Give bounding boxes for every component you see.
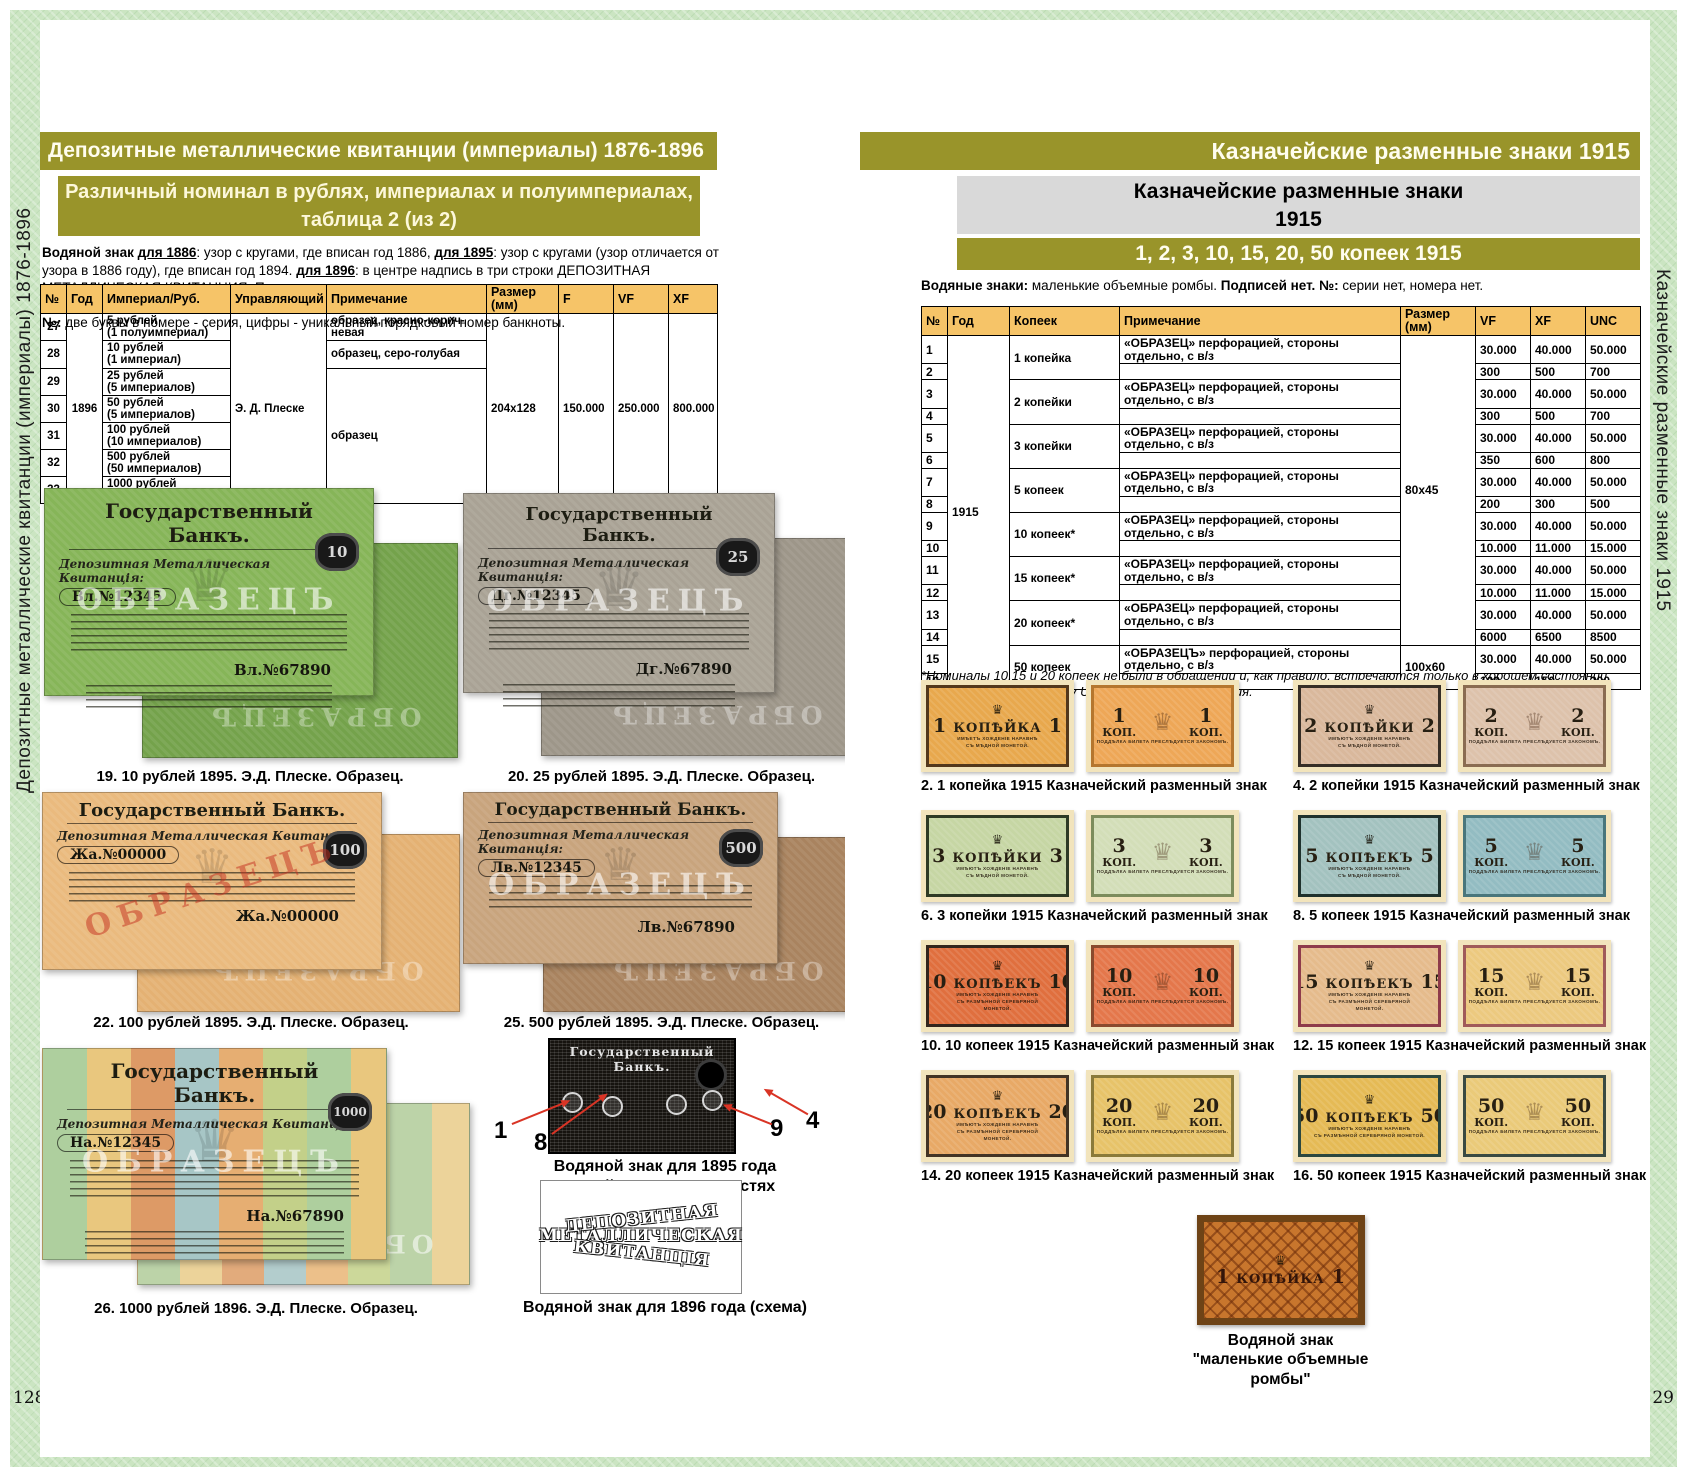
table-row: 1 1915 1 копейка «ОБРАЗЕЦ» перфорацией, …: [922, 336, 1641, 364]
watermark-1896-caption: Водяной знак для 1896 года (схема): [470, 1298, 860, 1318]
banknote-back: 3 КОП. ♛ 3 КОП. ПОДДѢЛКА БИЛЕТА: [1086, 810, 1239, 902]
banknote-figure: ♛ 5 КОПѢЕКЪ 5 ИМѢЮТЪ ХОЖДЕНІЕ НАРАВНѢ СЪ…: [1293, 810, 1613, 924]
callout-label-9: 9: [770, 1115, 783, 1143]
kop-abbrev: КОП.: [1102, 856, 1136, 869]
figure-caption: 19. 10 рублей 1895. Э.Д. Плеске. Образец…: [40, 768, 460, 785]
front-fine-print: МОНЕТОЙ.: [984, 1136, 1012, 1143]
banknote-front: ♛ Государственный Банкъ. Депозитная Мета…: [42, 1048, 387, 1260]
denomination-value: 20: [1049, 1103, 1069, 1122]
kop-abbrev: КОП.: [1474, 726, 1508, 739]
figure-caption: 8. 5 копеек 1915 Казначейский разменный …: [1293, 908, 1613, 924]
denomination-value: 15: [1298, 973, 1318, 992]
figure-caption: 26. 1000 рублей 1896. Э.Д. Плеске. Образ…: [42, 1300, 470, 1317]
front-fine-print: СЪ МѢДНОЙ МОНЕТОЙ.: [966, 873, 1029, 880]
denomination-word: КОПѢЕКЪ: [1325, 1112, 1413, 1125]
col-xf: XF: [1531, 307, 1586, 336]
back-fine-print: ПОДДѢЛКА БИЛЕТА ПРЕСЛѢДУЕТСЯ ЗАКОНОМЪ.: [1097, 869, 1229, 876]
col-no: №: [922, 307, 948, 336]
schema-box: ДЕПОЗИТНАЯ МЕТАЛЛИЧЕСКАЯ КВИТАНЦІЯ: [540, 1180, 742, 1294]
bank-title: Государственный Банкъ.: [67, 1059, 362, 1110]
serial-number-2: Лв.№67890: [478, 918, 735, 936]
denomination-value: 1: [1332, 1268, 1345, 1287]
front-fine-print: СЪ МѢДНОЙ МОНЕТОЙ.: [1338, 743, 1401, 750]
kop-abbrev: КОП.: [1474, 856, 1508, 869]
table-row: 5 3 копейки «ОБРАЗЕЦ» перфорацией, сторо…: [922, 424, 1641, 452]
denomination-value: 10: [1193, 967, 1219, 986]
banknote-front: ♛ Государственный Банкъ. Депозитная Мета…: [463, 792, 778, 964]
denomination-value: 1: [933, 717, 946, 736]
imperial-eagle-icon: ♛: [1524, 971, 1546, 995]
watermark-photo: ♛ 1 КОПѢЙКА 1: [1197, 1215, 1365, 1325]
figure-caption: 25. 500 рублей 1895. Э.Д. Плеске. Образе…: [463, 1014, 860, 1031]
imperial-eagle-icon: ♛: [1275, 1254, 1287, 1267]
sample-overlay: ОБРАЗЕЦЪ: [82, 1145, 347, 1180]
denomination-value: 5: [1305, 847, 1318, 866]
kop-abbrev: КОП.: [1189, 856, 1223, 869]
kop-abbrev: КОП.: [1561, 1116, 1595, 1129]
imperial-eagle-icon: ♛: [1152, 971, 1174, 995]
subtitle-line1: Различный номинал в рублях, империалах и…: [65, 181, 693, 203]
banknote-back: 5 КОП. ♛ 5 КОП. ПОДДѢЛКА БИЛЕТА: [1458, 810, 1611, 902]
denomination-value: 3: [932, 847, 945, 866]
front-fine-print: СЪ МѢДНОЙ МОНЕТОЙ.: [966, 743, 1029, 750]
right-catalog-table: № Год Копеек Примечание Размер (мм) VF X…: [921, 306, 1641, 690]
green-border-frame: Депозитные металлические квитанции (импе…: [10, 10, 1677, 1467]
watermark-caption: Водяной знак "маленькие объемные ромбы": [921, 1331, 1640, 1389]
col-no: №: [41, 285, 67, 314]
banknote-front: ♛ 20 КОПѢЕКЪ 20 ИМѢЮТЪ ХОЖДЕНІЕ НАРАВНѢ …: [921, 1070, 1074, 1162]
imperial-eagle-icon: ♛: [1364, 1093, 1376, 1106]
col-size: Размер (мм): [487, 285, 559, 314]
imperial-eagle-icon: ♛: [1524, 841, 1546, 865]
right-page-denoms-bar: 1, 2, 3, 10, 15, 20, 50 копеек 1915: [957, 238, 1640, 270]
bank-title: Государственный Банкъ.: [69, 499, 349, 550]
banknote-figure: ♛ 10 КОПѢЕКЪ 10 ИМѢЮТЪ ХОЖДЕНІЕ НАРАВНѢ …: [921, 940, 1241, 1054]
serial-number-2: Дг.№67890: [478, 660, 732, 678]
col-size: Размер (мм): [1401, 307, 1476, 336]
imperial-eagle-icon: ♛: [1152, 1101, 1174, 1125]
denomination-word: КОПѢЕКЪ: [1325, 978, 1413, 991]
table-row: 27 1896 5 рублей (1 полуимпериал) Э. Д. …: [41, 314, 718, 341]
denomination-word: КОПѢЙКИ: [1324, 722, 1414, 735]
figure-caption: 6. 3 копейки 1915 Казначейский разменный…: [921, 908, 1241, 924]
front-fine-print: ИМѢЮТЪ ХОЖДЕНІЕ НАРАВНѢ: [956, 992, 1038, 999]
figure-caption: 20. 25 рублей 1895. Э.Д. Плеске. Образец…: [463, 768, 860, 785]
denomination-value: 3: [1113, 837, 1126, 856]
serial-number-2: На.№67890: [57, 1207, 344, 1225]
front-fine-print: ИМѢЮТЪ ХОЖДЕНІЕ НАРАВНѢ: [1328, 992, 1410, 999]
imperial-eagle-icon: ♛: [992, 703, 1004, 716]
callout-label-4: 4: [806, 1107, 819, 1135]
figure-caption: 12. 15 копеек 1915 Казначейский разменны…: [1293, 1038, 1613, 1054]
table-row: 13 20 копеек* «ОБРАЗЕЦ» перфорацией, сто…: [922, 601, 1641, 629]
back-fine-print: ПОДДѢЛКА БИЛЕТА ПРЕСЛѢДУЕТСЯ ЗАКОНОМЪ.: [1469, 739, 1601, 746]
denomination-value: 3: [1199, 837, 1212, 856]
table-row: 11 15 копеек* «ОБРАЗЕЦ» перфорацией, сто…: [922, 557, 1641, 585]
back-fine-print: ПОДДѢЛКА БИЛЕТА ПРЕСЛѢДУЕТСЯ ЗАКОНОМЪ.: [1097, 1129, 1229, 1136]
banknote-figure: ♛ 20 КОПѢЕКЪ 20 ИМѢЮТЪ ХОЖДЕНІЕ НАРАВНѢ …: [921, 1070, 1241, 1184]
imperial-eagle-icon: ♛: [1152, 841, 1174, 865]
banknote-back: 2 КОП. ♛ 2 КОП. ПОДДѢЛКА БИЛЕТА: [1458, 680, 1611, 772]
denomination-badge: 25: [716, 538, 760, 576]
denomination-value: 50: [1478, 1097, 1504, 1116]
denomination-value: 1: [1113, 707, 1126, 726]
kop-abbrev: КОП.: [1102, 726, 1136, 739]
denomination-word: КОПѢЙКА: [953, 722, 1042, 735]
figure-500-rubles-1895: ОБРАЗЕЦЪ ♛ Государственный Банкъ. Депози…: [463, 792, 860, 1037]
kop-abbrev: КОП.: [1189, 726, 1223, 739]
front-fine-print: ИМѢЮТЪ ХОЖДЕНІЕ НАРАВНѢ: [956, 1122, 1038, 1129]
imperial-eagle-icon: ♛: [1364, 959, 1376, 972]
table-row: 9 10 копеек* «ОБРАЗЕЦ» перфорацией, стор…: [922, 513, 1641, 541]
figure-1000-rubles-1896: ОБРАЗЕЦЪ ♛ Государственный Банкъ. Депози…: [42, 1048, 470, 1320]
imperial-eagle-icon: ♛: [992, 1089, 1004, 1102]
banknote-front: ♛ 1 КОПѢЙКА 1 ИМѢЕТЪ ХОЖДЕНІЕ НАРАВНѢ СЪ…: [921, 680, 1074, 772]
banknote-front: ♛ Государственный Банкъ. Депозитная Мета…: [42, 792, 382, 970]
figure-10-rubles-1895: ОБРАЗЕЦЪ ♛ Государственный Банкъ. Депози…: [40, 488, 460, 788]
banknote-figure: ♛ 1 КОПѢЙКА 1 ИМѢЕТЪ ХОЖДЕНІЕ НАРАВНѢ СЪ…: [921, 680, 1241, 794]
col-note: Примечание: [327, 285, 487, 314]
denomination-value: 20: [1193, 1097, 1219, 1116]
table-row: 7 5 копеек «ОБРАЗЕЦ» перфорацией, сторон…: [922, 468, 1641, 496]
denomination-value: 15: [1421, 973, 1441, 992]
bank-title: Государственный Банкъ.: [488, 800, 753, 823]
col-xf: XF: [669, 285, 718, 314]
col-year: Год: [948, 307, 1010, 336]
front-fine-print: СЪ РАЗМѢННОЙ СЕРЕБРЯНОЙ: [957, 1129, 1038, 1136]
denomination-value: 50: [1421, 1107, 1441, 1126]
front-fine-print: МОНЕТОЙ.: [984, 1006, 1012, 1013]
table-header-row: № Год Империал/Руб. Управляющий Примечан…: [41, 285, 718, 314]
figure-caption: 10. 10 копеек 1915 Казначейский разменны…: [921, 1038, 1241, 1054]
serial-number: Жа.№00000: [57, 846, 179, 864]
figure-caption: 22. 100 рублей 1895. Э.Д. Плеске. Образе…: [42, 1014, 460, 1031]
denomination-value: 2: [1485, 707, 1498, 726]
col-vf: VF: [614, 285, 669, 314]
denomination-value: 3: [1050, 847, 1063, 866]
figure-caption: 2. 1 копейка 1915 Казначейский разменный…: [921, 778, 1241, 794]
imperial-eagle-icon: ♛: [992, 833, 1004, 846]
front-fine-print: ИМѢЮТЪ ХОЖДЕНІЕ НАРАВНѢ: [1328, 736, 1410, 743]
imperial-eagle-icon: ♛: [992, 959, 1004, 972]
col-note: Примечание: [1120, 307, 1401, 336]
figure-caption: 4. 2 копейки 1915 Казначейский разменный…: [1293, 778, 1613, 794]
right-intro-line: Водяные знаки: маленькие объемные ромбы.…: [921, 278, 1640, 293]
table-row: 3 2 копейки «ОБРАЗЕЦ» перфорацией, сторо…: [922, 380, 1641, 408]
col-vf: VF: [1476, 307, 1531, 336]
denomination-value: 20: [926, 1103, 946, 1122]
front-fine-print: МОНЕТОЙ.: [1356, 1006, 1384, 1013]
denomination-word: КОПѢЕКЪ: [953, 1108, 1041, 1121]
col-f: F: [559, 285, 614, 314]
bank-title: Государственный Банкъ.: [488, 504, 750, 549]
kop-abbrev: КОП.: [1561, 726, 1595, 739]
back-fine-print: ПОДДѢЛКА БИЛЕТА ПРЕСЛѢДУЕТСЯ ЗАКОНОМЪ.: [1469, 1129, 1601, 1136]
denomination-value: 10: [1049, 973, 1069, 992]
figure-caption: 14. 20 копеек 1915 Казначейский разменны…: [921, 1168, 1241, 1184]
fine-print-lines: [85, 1231, 343, 1255]
kop-abbrev: КОП.: [1189, 1116, 1223, 1129]
front-fine-print: ИМѢЮТЪ ХОЖДЕНІЕ НАРАВНѢ: [956, 866, 1038, 873]
denomination-value: 5: [1571, 837, 1584, 856]
date-circle: [702, 1090, 723, 1111]
kop-abbrev: КОП.: [1474, 1116, 1508, 1129]
denomination-word: КОПѢЙКА: [1236, 1273, 1325, 1286]
banknote-back: 1 КОП. ♛ 1 КОП. ПОДДѢЛКА БИЛЕТА: [1086, 680, 1239, 772]
back-fine-print: ПОДДѢЛКА БИЛЕТА ПРЕСЛѢДУЕТСЯ ЗАКОНОМЪ.: [1097, 999, 1229, 1006]
figure-100-rubles-1895: ОБРАЗЕЦЪ ♛ Государственный Банкъ. Депози…: [42, 792, 460, 1037]
back-fine-print: ПОДДѢЛКА БИЛЕТА ПРЕСЛѢДУЕТСЯ ЗАКОНОМЪ.: [1469, 869, 1601, 876]
denomination-value: 2: [1571, 707, 1584, 726]
back-fine-print: ПОДДѢЛКА БИЛЕТА ПРЕСЛѢДУЕТСЯ ЗАКОНОМЪ.: [1469, 999, 1601, 1006]
col-unc: UNC: [1586, 307, 1641, 336]
sample-overlay: ОБРАЗЕЦЪ: [488, 867, 753, 902]
sample-overlay: ОБРАЗЕЦЪ: [487, 583, 752, 618]
kop-abbrev: КОП.: [1102, 1116, 1136, 1129]
imperial-eagle-icon: ♛: [1524, 711, 1546, 735]
left-page-subtitle: Различный номинал в рублях, империалах и…: [58, 176, 700, 236]
fine-print-lines: [86, 685, 332, 709]
denomination-value: 15: [1478, 967, 1504, 986]
seal-blob: [698, 1062, 724, 1088]
figure-25-rubles-1895: ОБРАЗЕЦЪ ♛ Государственный Банкъ. Депози…: [463, 488, 860, 788]
banknote-front: ♛ 10 КОПѢЕКЪ 10 ИМѢЮТЪ ХОЖДЕНІЕ НАРАВНѢ …: [921, 940, 1074, 1032]
kop-abbrev: КОП.: [1189, 986, 1223, 999]
imperial-eagle-icon: ♛: [1524, 1101, 1546, 1125]
banknote-figure: ♛ 50 КОПѢЕКЪ 50 ИМѢЮТЪ ХОЖДЕНІЕ НАРАВНѢ …: [1293, 1070, 1613, 1184]
subtitle-line2: таблица 2 (из 2): [301, 209, 457, 231]
back-fine-print: ПОДДѢЛКА БИЛЕТА ПРЕСЛѢДУЕТСЯ ЗАКОНОМЪ.: [1097, 739, 1229, 746]
banknote-front: ♛ Государственный Банкъ. Депозитная Мета…: [463, 493, 775, 693]
imperial-eagle-icon: ♛: [1152, 711, 1174, 735]
front-fine-print: СЪ РАЗМѢННОЙ СЕРЕБРЯНОЙ: [1329, 999, 1410, 1006]
banknote-front: ♛ 3 КОПѢЙКИ 3 ИМѢЮТЪ ХОЖДЕНІЕ НАРАВНѢ СЪ…: [921, 810, 1074, 902]
denomination-value: 50: [1298, 1107, 1318, 1126]
denomination-value: 10: [1106, 967, 1132, 986]
banknote-front: ♛ 2 КОПѢЙКИ 2 ИМѢЮТЪ ХОЖДЕНІЕ НАРАВНѢ СЪ…: [1293, 680, 1446, 772]
banknote-front: ♛ Государственный Банкъ. Депозитная Мета…: [44, 488, 374, 696]
front-fine-print: СЪ МѢДНОЙ МОНЕТОЙ.: [1338, 873, 1401, 880]
denomination-word: КОПѢЙКИ: [952, 852, 1042, 865]
denomination-value: 15: [1565, 967, 1591, 986]
arrow-icon: [769, 1091, 808, 1115]
front-fine-print: ИМѢЮТЪ ХОЖДЕНІЕ НАРАВНѢ: [1328, 1126, 1410, 1133]
denomination-value: 1: [1199, 707, 1212, 726]
date-circle: [666, 1094, 687, 1115]
banknote-back: 10 КОП. ♛ 10 КОП. ПОДДѢЛКА БИЛЕТ: [1086, 940, 1239, 1032]
callout-label-1: 1: [494, 1117, 507, 1145]
bank-title: Государственный Банкъ.: [67, 800, 357, 824]
fine-print-lines: [503, 684, 734, 708]
sample-overlay: ОБРАЗЕЦЪ: [77, 583, 342, 618]
banknote-front: ♛ 50 КОПѢЕКЪ 50 ИМѢЮТЪ ХОЖДЕНІЕ НАРАВНѢ …: [1293, 1070, 1446, 1162]
front-fine-print: СЪ РАЗМѢННОЙ СЕРЕБРЯНОЙ МОНЕТОЙ.: [1314, 1133, 1425, 1140]
serial-number-2: Вл.№67890: [59, 661, 331, 679]
callout-label-8: 8: [534, 1129, 547, 1157]
left-catalog-table: № Год Империал/Руб. Управляющий Примечан…: [40, 284, 718, 504]
denomination-word: КОПѢЕКЪ: [1325, 852, 1413, 865]
denomination-value: 2: [1304, 717, 1317, 736]
denomination-value: 50: [1565, 1097, 1591, 1116]
kop-abbrev: КОП.: [1102, 986, 1136, 999]
kopeck-banknotes-grid: ♛ 1 КОПѢЙКА 1 ИМѢЕТЪ ХОЖДЕНІЕ НАРАВНѢ СЪ…: [921, 680, 1661, 1184]
figure-caption: 16. 50 копеек 1915 Казначейский разменны…: [1293, 1168, 1613, 1184]
denomination-value: 5: [1421, 847, 1434, 866]
right-page-graybox: Казначейские разменные знаки 1915: [957, 176, 1640, 234]
page-right: Казначейские разменные знаки 1915 Казнач…: [845, 20, 1650, 1457]
left-page-title: Депозитные металлические квитанции (импе…: [40, 132, 717, 170]
kop-abbrev: КОП.: [1561, 986, 1595, 999]
denomination-value: 1: [1216, 1268, 1229, 1287]
denomination-value: 10: [926, 973, 946, 992]
front-fine-print: ИМѢЮТЪ ХОЖДЕНІЕ НАРАВНѢ: [1328, 866, 1410, 873]
col-denom: Империал/Руб.: [103, 285, 231, 314]
denomination-badge: 500: [719, 829, 763, 867]
table-header-row: № Год Копеек Примечание Размер (мм) VF X…: [922, 307, 1641, 336]
imperial-eagle-icon: ♛: [1364, 833, 1376, 846]
banknote-figure: ♛ 2 КОПѢЙКИ 2 ИМѢЮТЪ ХОЖДЕНІЕ НАРАВНѢ СЪ…: [1293, 680, 1613, 794]
banknote-back: 15 КОП. ♛ 15 КОП. ПОДДѢЛКА БИЛЕТ: [1458, 940, 1611, 1032]
denomination-badge: 1000: [328, 1093, 372, 1131]
kop-abbrev: КОП.: [1474, 986, 1508, 999]
sidebar-title-left: Депозитные металлические квитанции (импе…: [10, 180, 40, 820]
figure-watermark-diamonds: ♛ 1 КОПѢЙКА 1 Водяной знак "маленькие об…: [921, 1215, 1640, 1389]
col-year: Год: [67, 285, 103, 314]
kop-abbrev: КОП.: [1561, 856, 1595, 869]
watermark-photo: Государственный Банкъ.: [548, 1038, 736, 1154]
banknote-figure: ♛ 3 КОПѢЙКИ 3 ИМѢЮТЪ ХОЖДЕНІЕ НАРАВНѢ СЪ…: [921, 810, 1241, 924]
col-manager: Управляющий: [231, 285, 327, 314]
denomination-value: 5: [1485, 837, 1498, 856]
page-left: Депозитные металлические квитанции (импе…: [40, 20, 845, 1457]
imperial-eagle-icon: ♛: [1364, 703, 1376, 716]
figure-watermark-1896-schema: ДЕПОЗИТНАЯ МЕТАЛЛИЧЕСКАЯ КВИТАНЦІЯ Водян…: [470, 1180, 860, 1325]
denomination-value: 1: [1049, 717, 1062, 736]
right-page-title: Казначейские разменные знаки 1915: [860, 132, 1640, 170]
sidebar-title-right: Казначейские разменные знаки 1915: [1647, 160, 1677, 720]
banknote-back: 20 КОП. ♛ 20 КОП. ПОДДѢЛКА БИЛЕТ: [1086, 1070, 1239, 1162]
front-fine-print: СЪ РАЗМѢННОЙ СЕРЕБРЯНОЙ: [957, 999, 1038, 1006]
denomination-value: 20: [1106, 1097, 1132, 1116]
banknote-figure: ♛ 15 КОПѢЕКЪ 15 ИМѢЮТЪ ХОЖДЕНІЕ НАРАВНѢ …: [1293, 940, 1613, 1054]
banknote-back: 50 КОП. ♛ 50 КОП. ПОДДѢЛКА БИЛЕТ: [1458, 1070, 1611, 1162]
banknote-front: ♛ 5 КОПѢЕКЪ 5 ИМѢЮТЪ ХОЖДЕНІЕ НАРАВНѢ СЪ…: [1293, 810, 1446, 902]
fine-print-lines: [71, 614, 347, 656]
banknote-front: ♛ 15 КОПѢЕКЪ 15 ИМѢЮТЪ ХОЖДЕНІЕ НАРАВНѢ …: [1293, 940, 1446, 1032]
col-kopeks: Копеек: [1010, 307, 1120, 336]
denomination-word: КОПѢЕКЪ: [953, 978, 1041, 991]
denomination-value: 2: [1422, 717, 1435, 736]
denomination-badge: 10: [315, 533, 359, 571]
front-fine-print: ИМѢЕТЪ ХОЖДЕНІЕ НАРАВНѢ: [957, 736, 1038, 743]
